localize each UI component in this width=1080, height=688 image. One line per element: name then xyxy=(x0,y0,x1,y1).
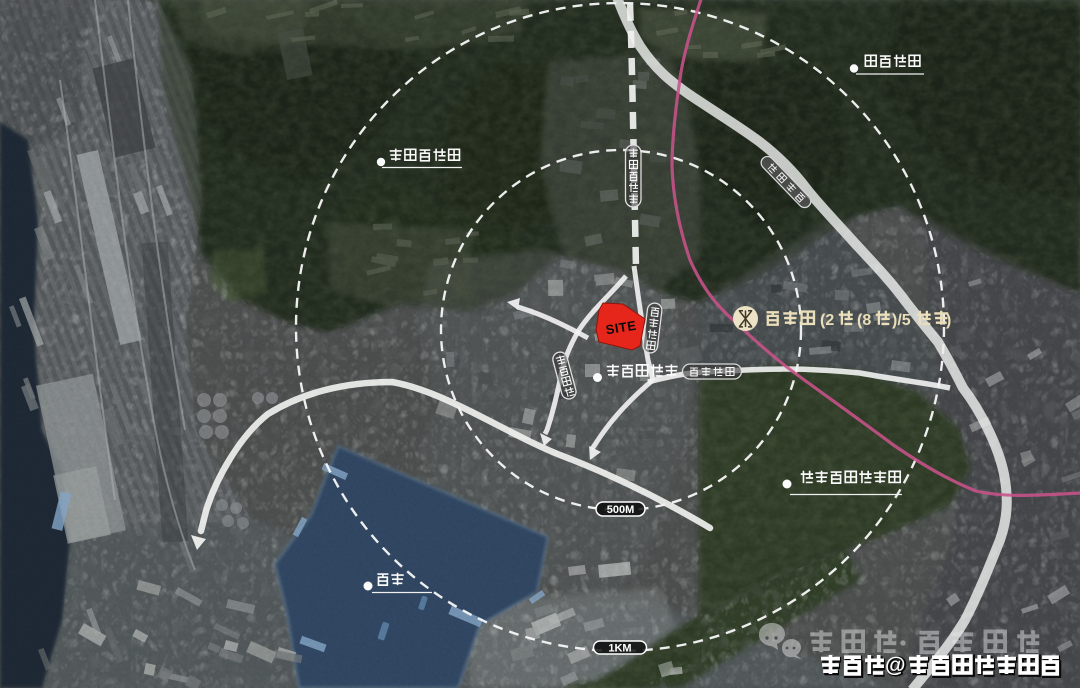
svg-text:1KM: 1KM xyxy=(608,643,631,655)
svg-text:): ) xyxy=(946,312,951,329)
svg-text:500M: 500M xyxy=(607,504,635,516)
svg-text:(8: (8 xyxy=(857,312,871,329)
svg-text:(2: (2 xyxy=(820,312,834,329)
svg-text:)/5: )/5 xyxy=(892,312,911,329)
svg-text:@: @ xyxy=(885,654,905,677)
